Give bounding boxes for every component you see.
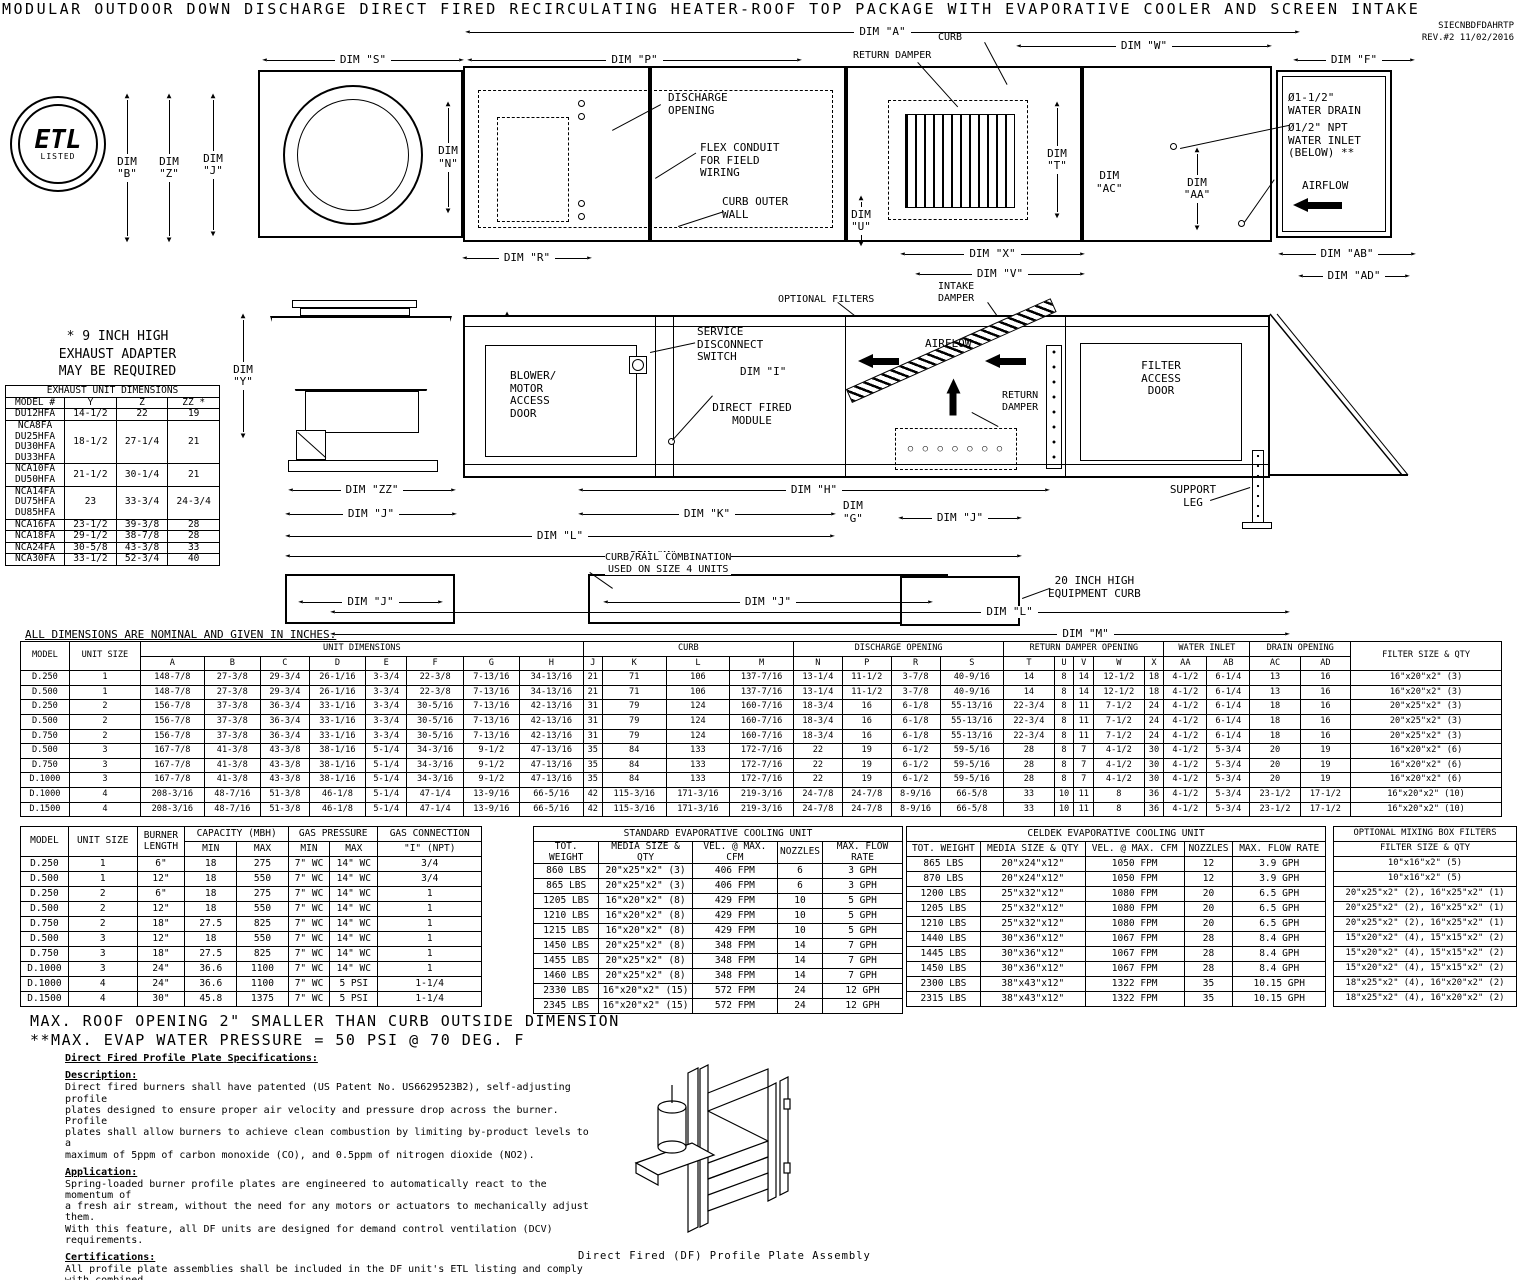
cell: 3 xyxy=(69,773,140,788)
column-header: W xyxy=(1094,656,1144,671)
cell: 171-3/16 xyxy=(666,787,730,802)
service-disconnect-switch xyxy=(629,356,647,374)
cell: 14" WC xyxy=(330,872,378,887)
cell: 11 xyxy=(1074,802,1094,817)
cell: 1440 LBS xyxy=(907,932,981,947)
cell: 39-3/8 xyxy=(116,519,168,531)
mixing-box-filters-table: OPTIONAL MIXING BOX FILTERSFILTER SIZE &… xyxy=(1333,826,1517,1007)
unit-dimensions-table: MODELUNIT SIZEUNIT DIMENSIONSCURBDISCHAR… xyxy=(20,641,1502,817)
cell: 3/4 xyxy=(378,872,482,887)
table-row: D.2501148-7/827-3/829-3/426-1/163-3/422-… xyxy=(21,671,1502,686)
dim-g-label: DIM "G" xyxy=(843,500,863,525)
dim-aa: DIM "AA" xyxy=(1176,146,1218,232)
cell: 59-5/16 xyxy=(940,744,1004,759)
cell: 22-3/4 xyxy=(1004,700,1054,715)
cell: 1100 xyxy=(237,977,289,992)
header-row: TOT. WEIGHTMEDIA SIZE & QTYVEL. @ MAX. C… xyxy=(907,842,1326,857)
cell: 3-3/4 xyxy=(366,685,407,700)
dim-x: DIM "X" xyxy=(900,248,1085,260)
cell: 38-1/16 xyxy=(309,744,365,759)
cell: D.1000 xyxy=(21,962,69,977)
column-header: T xyxy=(1004,656,1054,671)
cell: 825 xyxy=(237,917,289,932)
cell: 40 xyxy=(168,554,220,566)
cell: 24 xyxy=(777,984,822,999)
cell: D.750 xyxy=(21,758,70,773)
cell: 275 xyxy=(237,857,289,872)
cell: 1 xyxy=(378,902,482,917)
table-row: D.10004208-3/1648-7/1651-3/846-1/85-1/44… xyxy=(21,787,1502,802)
cell: 30-5/16 xyxy=(407,714,463,729)
cell: 30-1/4 xyxy=(116,464,168,486)
cell: 15"x20"x2" (4), 15"x15"x2" (2) xyxy=(1334,932,1517,947)
arrow-head xyxy=(947,379,961,394)
cell: 20"x25"x2" (3) xyxy=(1351,729,1502,744)
cell: 33 xyxy=(1004,802,1054,817)
cell: 24" xyxy=(137,962,185,977)
cell: 7 xyxy=(1074,744,1094,759)
cell: 7 GPH xyxy=(823,939,903,954)
dim-line: DIM "L" xyxy=(290,530,830,542)
cell: 18 xyxy=(185,857,237,872)
blower-door-label: BLOWER/ MOTOR ACCESS DOOR xyxy=(510,370,556,421)
column-header: STANDARD EVAPORATIVE COOLING UNIT xyxy=(534,827,903,842)
arrow-shaft xyxy=(1308,202,1342,209)
section-divider xyxy=(845,315,846,478)
cell: 14" WC xyxy=(330,932,378,947)
cell: 106 xyxy=(666,671,730,686)
profile-plate-specs: Direct Fired Profile Plate Specification… xyxy=(65,1053,595,1280)
cell: 13-1/4 xyxy=(793,671,842,686)
cell: 24-7/8 xyxy=(793,787,842,802)
table-row: 1210 LBS16"x20"x2" (8)429 FPM105 GPH xyxy=(534,909,903,924)
cell: 25"x32"x12" xyxy=(980,917,1085,932)
cell: 550 xyxy=(237,932,289,947)
cell: 21 xyxy=(168,420,220,464)
cell: NCA10FA DU50HFA xyxy=(6,464,65,486)
cell: 27-3/8 xyxy=(204,685,260,700)
cell: 24 xyxy=(777,999,822,1014)
cell: 148-7/8 xyxy=(140,685,204,700)
arrow-head xyxy=(985,354,1000,368)
column-header: "I" (NPT) xyxy=(378,842,482,857)
cell: 2 xyxy=(68,887,137,902)
cell: 3 GPH xyxy=(823,864,903,879)
dim-l-label: DIM "L" xyxy=(532,530,588,542)
cell: 10 xyxy=(777,909,822,924)
dim-j-side-2: DIM "J" xyxy=(898,512,1022,524)
column-header: F xyxy=(407,656,463,671)
cell: 3 GPH xyxy=(823,879,903,894)
cell: 38-1/16 xyxy=(309,773,365,788)
cell: 16"x20"x2" (3) xyxy=(1351,671,1502,686)
cell: 19 xyxy=(842,773,891,788)
description-body: Direct fired burners shall have patented… xyxy=(65,1082,595,1160)
cell: 137-7/16 xyxy=(730,671,794,686)
cell: 24 xyxy=(1144,700,1164,715)
column-header: MODEL # xyxy=(6,397,65,409)
cell: D.1500 xyxy=(21,802,70,817)
cell: 19 xyxy=(842,758,891,773)
cell: 30" xyxy=(137,992,185,1007)
dim-ad-label: DIM "AD" xyxy=(1323,270,1386,282)
cell: 1322 FPM xyxy=(1085,992,1184,1007)
cell: 30-5/16 xyxy=(407,700,463,715)
dim-line: DIM "S" xyxy=(267,54,459,66)
column-header: P xyxy=(842,656,891,671)
column-header: X xyxy=(1144,656,1164,671)
cell: D.500 xyxy=(21,872,69,887)
page-title: MODULAR OUTDOOR DOWN DISCHARGE DIRECT FI… xyxy=(2,0,1420,18)
cell: 8 xyxy=(1054,700,1074,715)
cell: D.250 xyxy=(21,887,69,902)
cell: 870 LBS xyxy=(907,872,981,887)
cell: 1375 xyxy=(237,992,289,1007)
cell: 18 xyxy=(1250,700,1300,715)
table-row: 1200 LBS25"x32"x12"1080 FPM206.5 GPH xyxy=(907,887,1326,902)
cell: 8-9/16 xyxy=(891,802,940,817)
table-row: 1205 LBS25"x32"x12"1080 FPM206.5 GPH xyxy=(907,902,1326,917)
return-damper-holes xyxy=(895,428,1017,470)
cell: 22-3/4 xyxy=(1004,714,1054,729)
cell: 6-1/4 xyxy=(1207,700,1250,715)
cell: 4-1/2 xyxy=(1164,787,1207,802)
cell: 11-1/2 xyxy=(842,671,891,686)
cell: 43-3/8 xyxy=(116,542,168,554)
cell: 28 xyxy=(1004,744,1054,759)
cell: 572 FPM xyxy=(692,984,777,999)
cell: 572 FPM xyxy=(692,999,777,1014)
cell: 23-1/2 xyxy=(1250,787,1300,802)
cell: 6-1/2 xyxy=(891,773,940,788)
table-row: NCA16FA23-1/239-3/828 xyxy=(6,519,220,531)
cell: 20 xyxy=(1184,887,1233,902)
cell: 18"x25"x2" (4), 16"x20"x2" (2) xyxy=(1334,992,1517,1007)
cell: NCA8FA DU25HFA DU30HFA DU33HFA xyxy=(6,420,65,464)
cell: 167-7/8 xyxy=(140,744,204,759)
dim-x-label: DIM "X" xyxy=(964,248,1020,260)
cell: 4-1/2 xyxy=(1164,744,1207,759)
cell: 11 xyxy=(1074,787,1094,802)
column-header: CURB xyxy=(583,642,793,657)
cell: 24 xyxy=(1144,729,1164,744)
cell: 7" WC xyxy=(288,917,329,932)
cell: 4 xyxy=(69,802,140,817)
cell: 16 xyxy=(1300,685,1350,700)
cell: 47-13/16 xyxy=(520,758,584,773)
cell: 1 xyxy=(69,685,140,700)
cell: 4-1/2 xyxy=(1164,802,1207,817)
table-row: 1210 LBS25"x32"x12"1080 FPM206.5 GPH xyxy=(907,917,1326,932)
column-header: MEDIA SIZE & QTY xyxy=(599,842,692,864)
cell: 84 xyxy=(602,758,666,773)
cell: 20"x25"x2" (3) xyxy=(1351,700,1502,715)
cell: 160-7/16 xyxy=(730,729,794,744)
cell: 7 GPH xyxy=(823,954,903,969)
cell: 38-1/16 xyxy=(309,758,365,773)
column-header: VEL. @ MAX. CFM xyxy=(1085,842,1184,857)
cell: 20 xyxy=(1250,758,1300,773)
table-row: DU12HFA14-1/22219 xyxy=(6,409,220,421)
table-row: D.1000324"36.611007" WC14" WC1 xyxy=(21,962,482,977)
cell: 16"x20"x2" (15) xyxy=(599,984,692,999)
cell: 20"x25"x2" (3) xyxy=(599,879,692,894)
cell: 5-1/4 xyxy=(366,758,407,773)
cell: 2 xyxy=(68,917,137,932)
cell: 10"x16"x2" (5) xyxy=(1334,857,1517,872)
table-row: D.25016"182757" WC14" WC3/4 xyxy=(21,857,482,872)
cell: 133 xyxy=(666,758,730,773)
cell: 12-1/2 xyxy=(1094,671,1144,686)
dim-line: DIM "W" xyxy=(1021,40,1267,52)
dim-w: DIM "W" xyxy=(1016,40,1272,52)
cell: 24-3/4 xyxy=(168,486,220,519)
cell: 14 xyxy=(777,954,822,969)
airflow-arrow-icon xyxy=(1293,198,1342,212)
cell: 10.15 GPH xyxy=(1233,992,1326,1007)
cell: 28 xyxy=(1004,758,1054,773)
cell: 1100 xyxy=(237,962,289,977)
dim-f-label: DIM "F" xyxy=(1326,54,1382,66)
cell: 21 xyxy=(583,685,602,700)
cell: 7-13/16 xyxy=(463,729,519,744)
cell: 1455 LBS xyxy=(534,954,599,969)
cell: 14" WC xyxy=(330,887,378,902)
cell: 2300 LBS xyxy=(907,977,981,992)
cell: 9-1/2 xyxy=(463,758,519,773)
cell: 1 xyxy=(378,917,482,932)
cell: 4-1/2 xyxy=(1164,685,1207,700)
cell: 7 xyxy=(1074,758,1094,773)
blower-access-door xyxy=(485,345,637,457)
celdek-evap-cooling-table: CELDEK EVAPORATIVE COOLING UNITTOT. WEIG… xyxy=(906,826,1326,1007)
header-row: TOT. WEIGHTMEDIA SIZE & QTYVEL. @ MAX. C… xyxy=(534,842,903,864)
cell: 115-3/16 xyxy=(602,787,666,802)
column-header: S xyxy=(940,656,1004,671)
cell: 18 xyxy=(1250,714,1300,729)
cell: 3-7/8 xyxy=(891,685,940,700)
table-row: 1460 LBS20"x25"x2" (8)348 FPM147 GPH xyxy=(534,969,903,984)
cell: 5 GPH xyxy=(823,909,903,924)
cell: 43-3/8 xyxy=(260,773,309,788)
cell: 20"x25"x2" (2), 16"x25"x2" (1) xyxy=(1334,917,1517,932)
airflow-arrow-icon xyxy=(858,354,899,368)
table-row: D.7503167-7/841-3/843-3/838-1/165-1/434-… xyxy=(21,758,1502,773)
cell: 7-13/16 xyxy=(463,685,519,700)
cell: 23-1/2 xyxy=(65,519,117,531)
table-row: 15"x20"x2" (4), 15"x15"x2" (2) xyxy=(1334,947,1517,962)
dim-i-label: DIM "I" xyxy=(740,366,786,379)
cell: 8 xyxy=(1054,744,1074,759)
cell: 14 xyxy=(1004,685,1054,700)
cell: 156-7/8 xyxy=(140,700,204,715)
dim-t: DIM "T" xyxy=(1036,100,1078,220)
cell: 124 xyxy=(666,714,730,729)
table-row: D.500212"185507" WC14" WC1 xyxy=(21,902,482,917)
cell: 18-3/4 xyxy=(793,714,842,729)
cell: NCA16FA xyxy=(6,519,65,531)
cell: 22 xyxy=(793,773,842,788)
cell: 18 xyxy=(1144,685,1164,700)
cell: 3-3/4 xyxy=(366,671,407,686)
table-row: 1455 LBS20"x25"x2" (8)348 FPM147 GPH xyxy=(534,954,903,969)
dim-v-label: DIM "V" xyxy=(972,268,1028,280)
cell: NCA18FA xyxy=(6,531,65,543)
cell: 1080 FPM xyxy=(1085,917,1184,932)
cell: 11 xyxy=(1074,714,1094,729)
cell: 16"x20"x2" (6) xyxy=(1351,744,1502,759)
cell: 47-1/4 xyxy=(407,802,463,817)
cell: 31 xyxy=(583,729,602,744)
conduit-hole xyxy=(578,100,585,107)
cell: 7" WC xyxy=(288,992,329,1007)
cell: 14 xyxy=(777,939,822,954)
cell: 14 xyxy=(1074,671,1094,686)
dim-h: DIM "H" xyxy=(578,484,1050,496)
cell: 16 xyxy=(1300,714,1350,729)
cell: 34-3/16 xyxy=(407,744,463,759)
table-row: 10"x16"x2" (5) xyxy=(1334,872,1517,887)
column-header: R xyxy=(891,656,940,671)
cell: 11-1/2 xyxy=(842,685,891,700)
support-leg-label: SUPPORT LEG xyxy=(1148,484,1238,509)
cell: 6" xyxy=(137,887,185,902)
cell: 1067 FPM xyxy=(1085,962,1184,977)
flex-conduit-label: FLEX CONDUIT FOR FIELD WIRING xyxy=(700,142,779,180)
dim-line: DIM "AB" xyxy=(1283,248,1411,260)
cell: 21 xyxy=(583,671,602,686)
cell: 160-7/16 xyxy=(730,700,794,715)
cell: NCA14FA DU75HFA DU85HFA xyxy=(6,486,65,519)
cell: 1215 LBS xyxy=(534,924,599,939)
cell: 8.4 GPH xyxy=(1233,947,1326,962)
cell: 59-5/16 xyxy=(940,758,1004,773)
dim-u: DIM "U" xyxy=(840,194,882,248)
cell: 37-3/8 xyxy=(204,714,260,729)
cell: 36 xyxy=(1144,802,1164,817)
column-header: E xyxy=(366,656,407,671)
cell: 7" WC xyxy=(288,902,329,917)
cell: D.1000 xyxy=(21,773,70,788)
cell: 36.6 xyxy=(185,977,237,992)
return-damper-label-plan: RETURN DAMPER xyxy=(853,50,931,62)
table-row: 1205 LBS16"x20"x2" (8)429 FPM105 GPH xyxy=(534,894,903,909)
cell: 36 xyxy=(1144,787,1164,802)
table-row: NCA30FA33-1/252-3/440 xyxy=(6,554,220,566)
table-row: D.750218"27.58257" WC14" WC1 xyxy=(21,917,482,932)
column-header: AD xyxy=(1300,656,1350,671)
cell: 19 xyxy=(842,744,891,759)
dim-line: DIM "AA" xyxy=(1176,154,1218,224)
cell: 12 GPH xyxy=(823,999,903,1014)
application-heading: Application: xyxy=(65,1167,595,1178)
cell: 47-13/16 xyxy=(520,744,584,759)
cell: 8-9/16 xyxy=(891,787,940,802)
cell: 20"x25"x2" (3) xyxy=(1351,714,1502,729)
cell: 30"x36"x12" xyxy=(980,932,1085,947)
table-row: 1440 LBS30"x36"x12"1067 FPM288.4 GPH xyxy=(907,932,1326,947)
cell: 22-3/4 xyxy=(1004,729,1054,744)
cell: 12" xyxy=(137,872,185,887)
certifications-body: All profile plate assemblies shall be in… xyxy=(65,1264,595,1280)
cell: D.500 xyxy=(21,685,70,700)
column-header: AA xyxy=(1164,656,1207,671)
water-drain-label: Ø1-1/2" WATER DRAIN xyxy=(1288,92,1361,117)
cell: 20"x25"x2" (2), 16"x25"x2" (1) xyxy=(1334,902,1517,917)
dim-line: DIM "ZZ" xyxy=(293,484,451,496)
cell: D.250 xyxy=(21,857,69,872)
dim-j-label: DIM "J" xyxy=(343,508,399,520)
cell: 27-3/8 xyxy=(204,671,260,686)
cell: 71 xyxy=(602,685,666,700)
cell: 4 xyxy=(68,977,137,992)
cell: 1067 FPM xyxy=(1085,947,1184,962)
cell: 21 xyxy=(168,464,220,486)
dim-j-plan: DIM "J" xyxy=(192,92,234,238)
table-row: 1215 LBS16"x20"x2" (8)429 FPM105 GPH xyxy=(534,924,903,939)
dim-y-label: DIM "Y" xyxy=(233,362,253,390)
support-leg-foot xyxy=(1242,522,1272,529)
cell: 348 FPM xyxy=(692,939,777,954)
cell: 7" WC xyxy=(288,962,329,977)
revision-text: REV.#2 11/02/2016 xyxy=(1422,32,1514,44)
cell: 3 xyxy=(69,758,140,773)
column-header: D xyxy=(309,656,365,671)
cell: 106 xyxy=(666,685,730,700)
arrow-shaft xyxy=(873,358,899,365)
cell: 133 xyxy=(666,773,730,788)
column-header: MIN xyxy=(288,842,329,857)
airflow-label-side: AIRFLOW xyxy=(925,338,971,351)
column-header: NOZZLES xyxy=(777,842,822,864)
cell: 43-3/8 xyxy=(260,744,309,759)
cell: 3-3/4 xyxy=(366,729,407,744)
cell: 20"x24"x12" xyxy=(980,857,1085,872)
dim-line: DIM "N" xyxy=(427,108,469,207)
cell: 550 xyxy=(237,872,289,887)
cell: 9-1/2 xyxy=(463,744,519,759)
cell: 172-7/16 xyxy=(730,773,794,788)
cell: D.250 xyxy=(21,700,70,715)
header-row: FILTER SIZE & QTY xyxy=(1334,842,1517,857)
cell: 37-3/8 xyxy=(204,729,260,744)
cell: 13-1/4 xyxy=(793,685,842,700)
column-header: V xyxy=(1074,656,1094,671)
cell: 24 xyxy=(1144,714,1164,729)
header-row: OPTIONAL MIXING BOX FILTERS xyxy=(1334,827,1517,842)
cell: 38-7/8 xyxy=(116,531,168,543)
dim-zz: DIM "ZZ" xyxy=(288,484,456,496)
cell: 3 xyxy=(68,932,137,947)
cell: 25"x32"x12" xyxy=(980,887,1085,902)
cell: 38"x43"x12" xyxy=(980,977,1085,992)
cell: 18" xyxy=(137,947,185,962)
column-header: FILTER SIZE & QTY xyxy=(1334,842,1517,857)
cell: 6-1/4 xyxy=(1207,685,1250,700)
header-row: STANDARD EVAPORATIVE COOLING UNIT xyxy=(534,827,903,842)
cell: 4-1/2 xyxy=(1164,700,1207,715)
cell: 41-3/8 xyxy=(204,773,260,788)
cell: 34-13/16 xyxy=(520,671,584,686)
cell: 124 xyxy=(666,729,730,744)
cell: 1322 FPM xyxy=(1085,977,1184,992)
service-switch-label: SERVICE DISCONNECT SWITCH xyxy=(697,326,763,364)
leader-line xyxy=(1022,588,1051,599)
table-row: 1450 LBS30"x36"x12"1067 FPM288.4 GPH xyxy=(907,962,1326,977)
cell: 33-1/16 xyxy=(309,714,365,729)
cell: 30-5/16 xyxy=(407,729,463,744)
column-header: M xyxy=(730,656,794,671)
